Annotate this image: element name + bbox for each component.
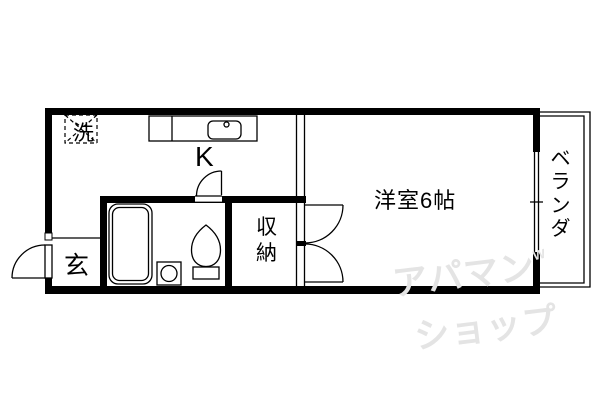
toilet-bowl-icon bbox=[192, 225, 221, 267]
sink-faucet-icon bbox=[224, 122, 229, 127]
wall-left bbox=[45, 108, 52, 236]
wall-bath-top-left bbox=[100, 196, 195, 203]
washbasin-bowl-icon bbox=[161, 266, 177, 282]
bathroom-door-arc bbox=[197, 171, 222, 196]
closet-label: 収納 bbox=[255, 215, 278, 266]
wall-bath-left bbox=[100, 196, 107, 286]
wall-top bbox=[45, 108, 540, 115]
closet-door-arc-top bbox=[305, 205, 343, 243]
bathtub-inner bbox=[113, 208, 149, 281]
wall-bath-top-right bbox=[222, 196, 306, 203]
entrance-door-leaf bbox=[45, 245, 52, 278]
entrance-door-arc bbox=[12, 245, 45, 278]
veranda-label: ベランダ bbox=[549, 148, 572, 242]
washer-space-label: 洗 bbox=[73, 117, 94, 147]
bathtub-outer bbox=[109, 204, 152, 284]
kitchen-label: K bbox=[195, 141, 214, 173]
toilet-tank bbox=[193, 267, 219, 279]
wall-bath-closet-divider bbox=[225, 203, 232, 286]
western-room-label: 洋室6帖 bbox=[374, 183, 456, 215]
wall-right-upper bbox=[533, 108, 540, 152]
entrance-label: 玄 bbox=[64, 246, 89, 282]
floor-plan: 洗 K 玄 収納 洋室6帖 ベランダ W アパマン ショップ bbox=[0, 0, 600, 400]
closet-door-arc-bottom bbox=[305, 244, 343, 282]
wall-end-cap bbox=[45, 233, 52, 240]
